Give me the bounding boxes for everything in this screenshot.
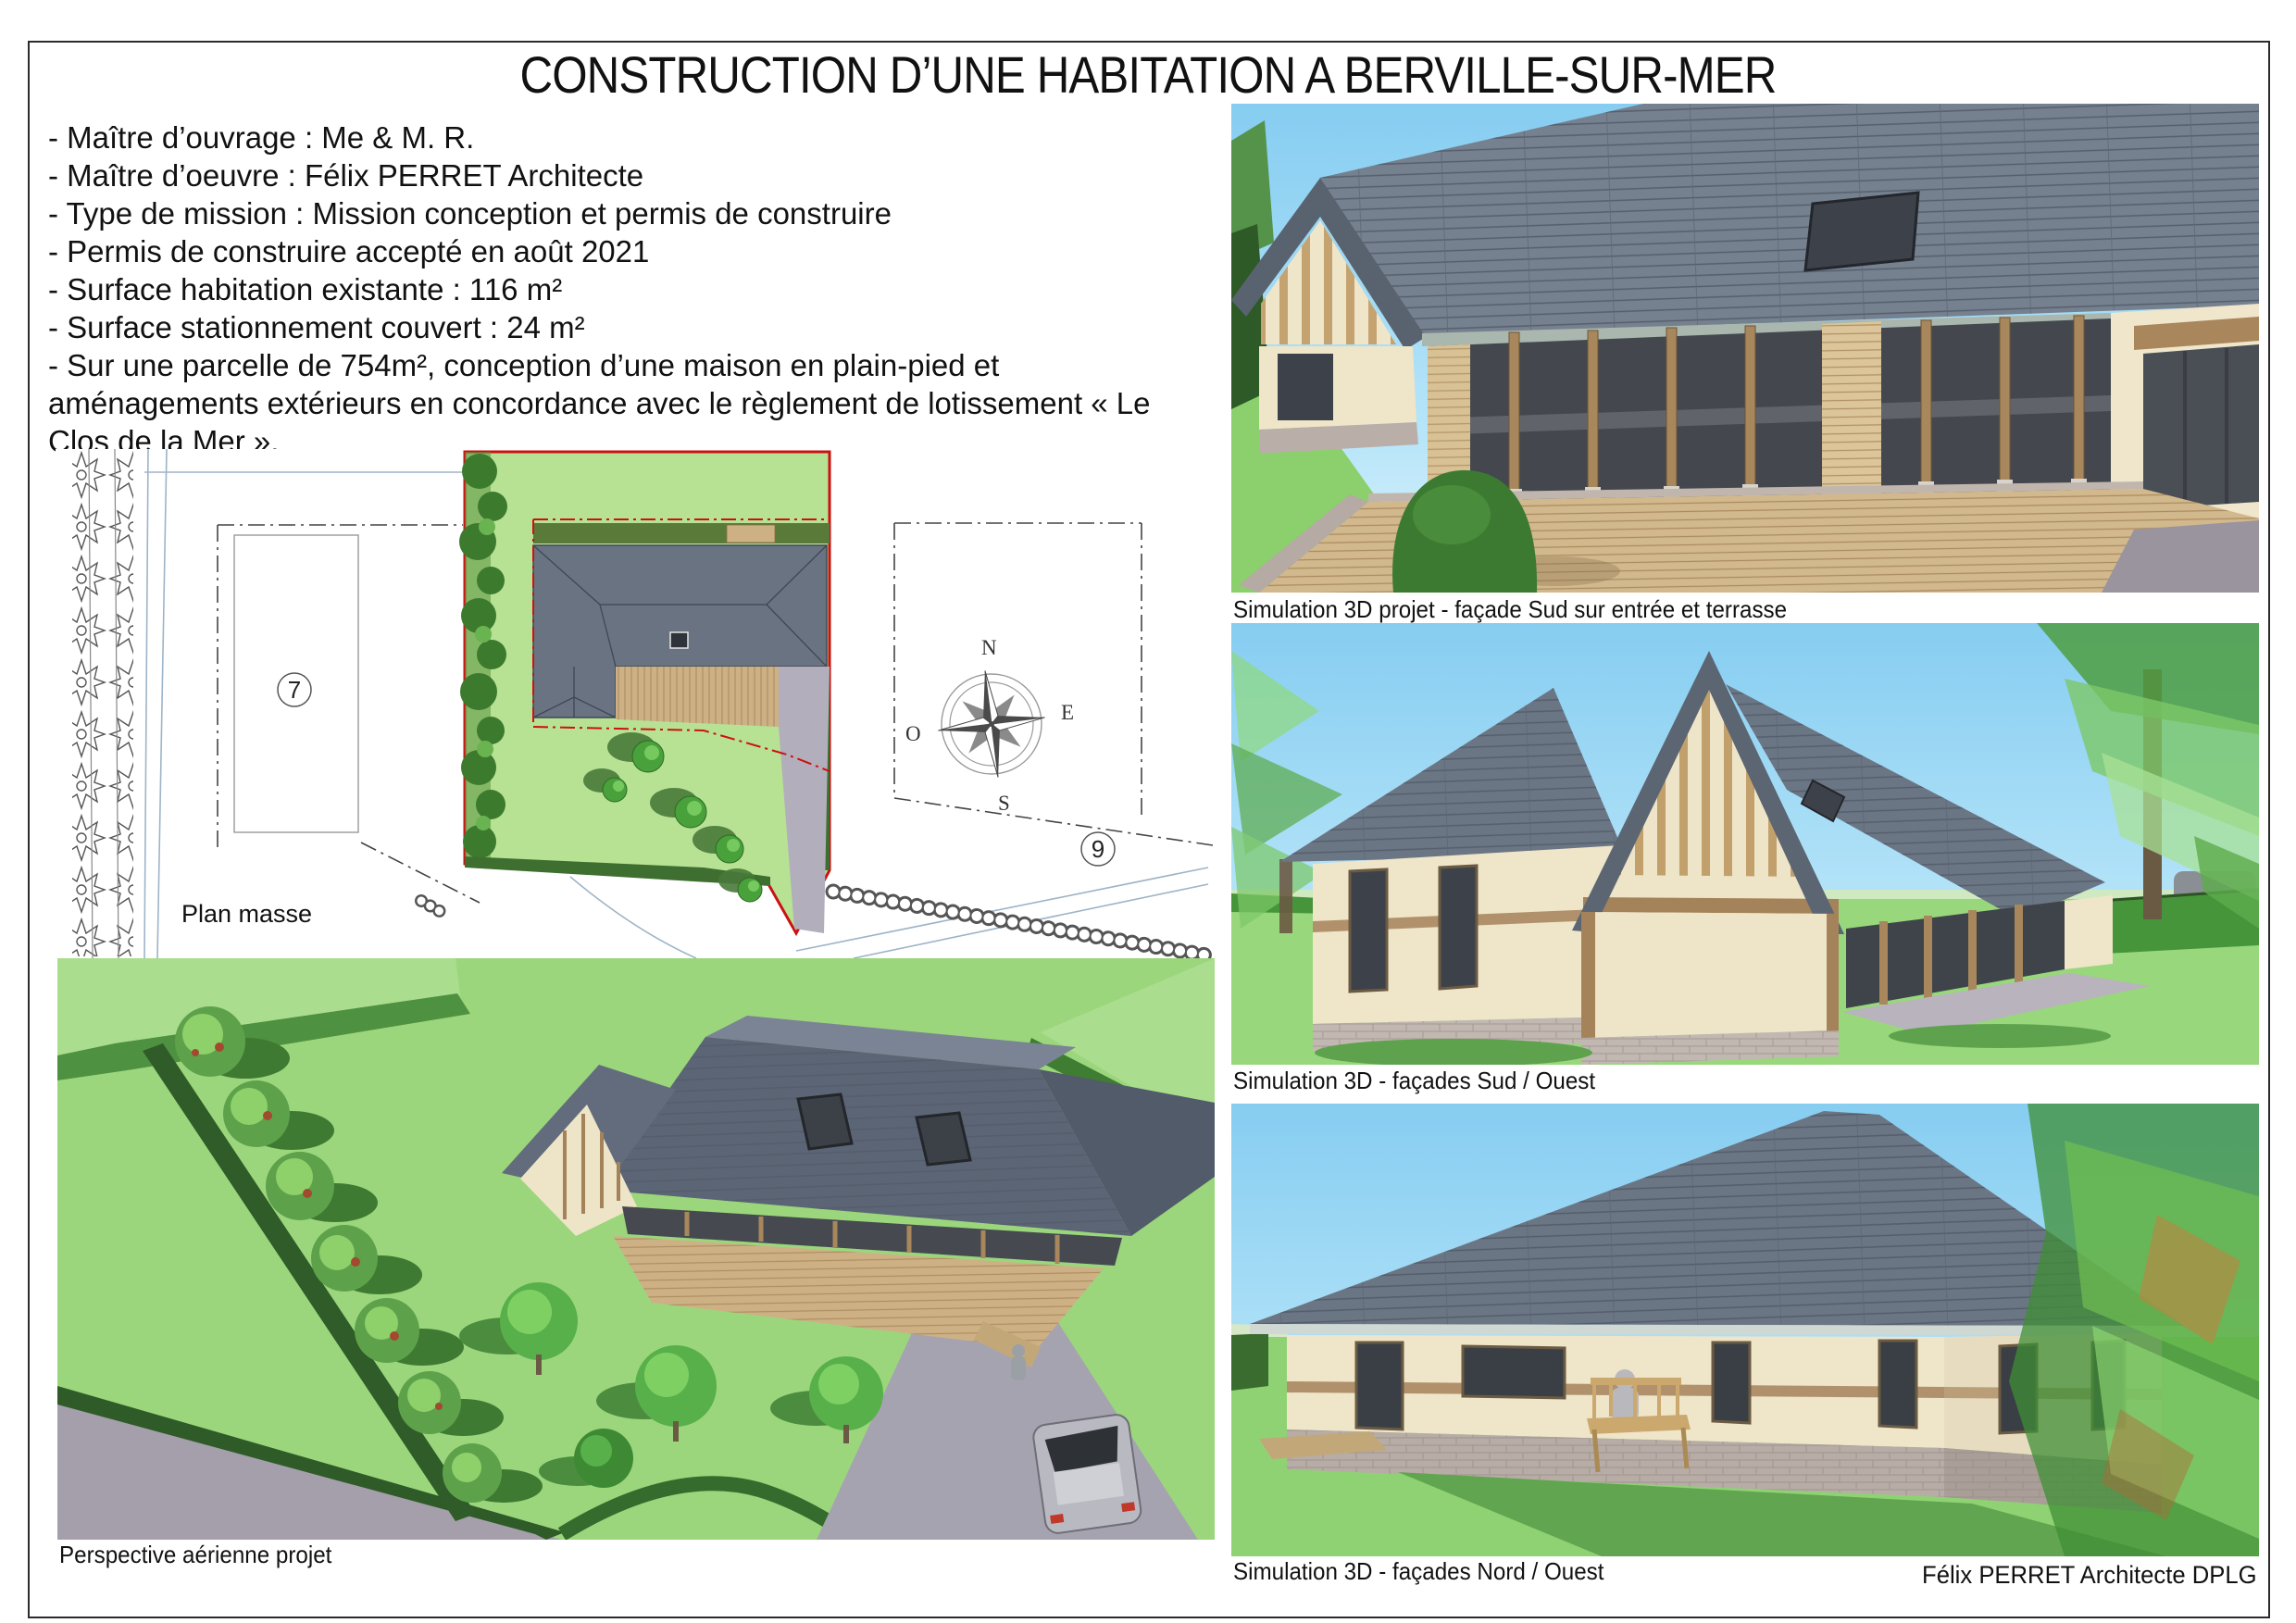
skylight: [798, 1094, 852, 1149]
page-title: CONSTRUCTION D’UNE HABITATION A BERVILLE…: [138, 44, 2158, 105]
terrace-deck: [1239, 481, 2259, 593]
info-maitre-oeuvre: - Maître d’oeuvre : Félix PERRET Archite…: [48, 156, 1210, 194]
lawn-shadow-2: [1889, 1024, 2111, 1048]
figure-sim-sud-ouest: [1231, 623, 2259, 1065]
compass-west-label: O: [905, 722, 921, 745]
info-type-mission: - Type de mission : Mission conception e…: [48, 194, 1210, 232]
architect-signature: Félix PERRET Architecte DPLG: [1922, 1561, 2257, 1590]
figure-perspective-aerienne: [57, 958, 1215, 1540]
parcel-7-number: 7: [288, 676, 301, 704]
parcel-9-number: 9: [1092, 835, 1104, 863]
skylight: [1805, 193, 1918, 270]
info-maitre-ouvrage: - Maître d’ouvrage : Me & M. R.: [48, 119, 1210, 156]
left-hedge: [1231, 1333, 1268, 1391]
compass-north-label: N: [981, 636, 997, 659]
info-surface-stationnement: - Surface stationnement couvert : 24 m²: [48, 308, 1210, 346]
plan-roadside-hedge-row: [72, 449, 133, 958]
architect-presentation-sheet: CONSTRUCTION D’UNE HABITATION A BERVILLE…: [0, 0, 2296, 1623]
entry-door: [1356, 1342, 1403, 1429]
caption-sim-sud-ouest: Simulation 3D - façades Sud / Ouest: [1233, 1067, 1595, 1095]
info-surface-habitation: - Surface habitation existante : 116 m²: [48, 270, 1210, 308]
skylight: [917, 1113, 970, 1165]
figure-sim-sud-entree: [1231, 104, 2259, 593]
compass-south-label: S: [998, 792, 1010, 815]
window: [1713, 1342, 1750, 1423]
right-tree: [2009, 1104, 2259, 1556]
caption-sim-nord-ouest: Simulation 3D - façades Nord / Ouest: [1233, 1557, 1603, 1586]
caption-perspective-aerienne: Perspective aérienne projet: [59, 1541, 331, 1569]
plan-masse-label: Plan masse: [181, 900, 312, 929]
compass-east-label: E: [1061, 701, 1074, 724]
glazed-colonnade: [1428, 316, 2111, 506]
info-parcelle: - Sur une parcelle de 754m², conception …: [48, 346, 1210, 460]
car: [1032, 1413, 1142, 1534]
window: [1463, 1346, 1565, 1398]
figure-sim-nord-ouest: [1231, 1104, 2259, 1556]
plan-project-parcel: [459, 452, 830, 933]
plan-north-deck: [727, 525, 775, 543]
project-info-list: - Maître d’ouvrage : Me & M. R. - Maître…: [48, 119, 1210, 460]
caption-sim-sud-entree: Simulation 3D projet - façade Sud sur en…: [1233, 595, 1787, 624]
plan-skylight: [670, 632, 688, 648]
info-permis: - Permis de construire accepté en août 2…: [48, 232, 1210, 270]
person: [1011, 1344, 1026, 1380]
figure-plan-masse: 7 9: [56, 449, 1213, 958]
plan-north-hedge: [533, 523, 830, 543]
window: [1879, 1341, 1916, 1428]
